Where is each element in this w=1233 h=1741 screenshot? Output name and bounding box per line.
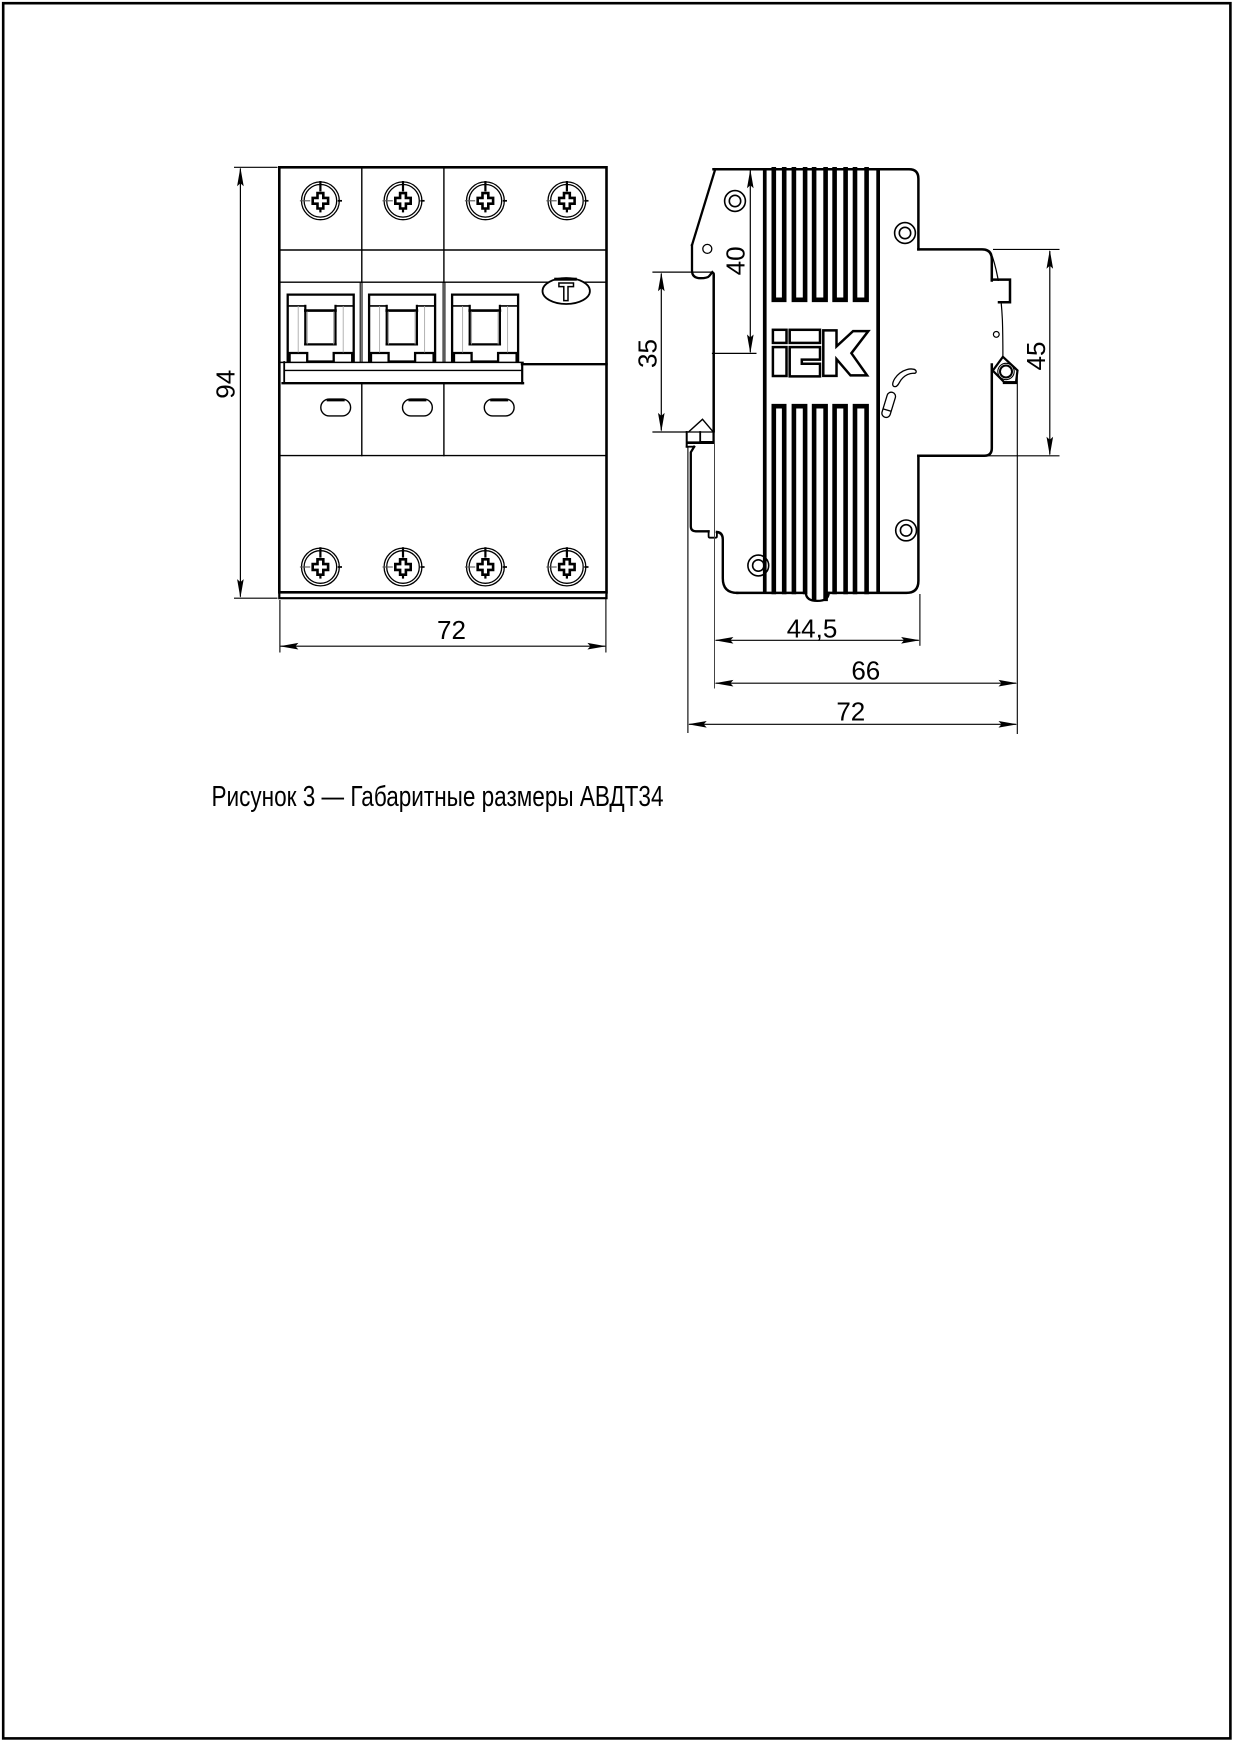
svg-text:94: 94 — [210, 370, 240, 399]
svg-text:40: 40 — [721, 246, 751, 275]
svg-text:44,5: 44,5 — [787, 614, 838, 644]
svg-text:72: 72 — [836, 696, 865, 726]
svg-text:72: 72 — [437, 615, 466, 645]
svg-text:35: 35 — [632, 339, 662, 368]
svg-text:66: 66 — [851, 655, 880, 685]
svg-text:45: 45 — [1021, 342, 1051, 371]
svg-text:Рисунок 3 — Габаритные размеры: Рисунок 3 — Габаритные размеры АВДТ34 — [212, 781, 664, 813]
